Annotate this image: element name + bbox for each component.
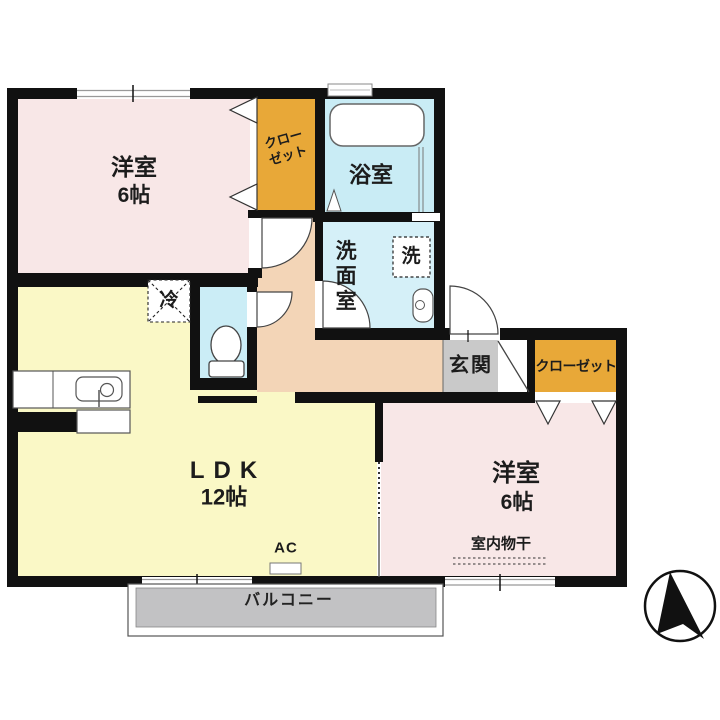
door-front <box>450 286 498 334</box>
bedroom-top-name: 洋室 <box>111 154 157 180</box>
ldk-size: 12帖 <box>201 484 247 509</box>
bath-label: 浴室 <box>349 162 393 187</box>
kitchen-lower-dark <box>13 412 77 432</box>
wall-washroom-bottom <box>315 328 450 340</box>
balcony-label: バルコニー <box>244 592 334 610</box>
hallway-area-2 <box>315 340 443 392</box>
entrance-label: 玄関 <box>449 355 493 378</box>
floor-plan: 洋室 6帖 クロー ゼット 浴室 洗面室 洗 冷 玄関 クローゼット LDK 1… <box>0 0 720 720</box>
wall-partition <box>375 398 383 462</box>
wall-wc-bottom <box>190 378 257 390</box>
ac-unit-box <box>270 563 301 574</box>
ldk-name: LDK <box>190 457 266 485</box>
wall-right <box>616 328 627 587</box>
entrance-diagonal-line <box>498 341 529 392</box>
wall-wc-lower-bar <box>198 396 257 403</box>
closet-right-label: クローゼット <box>536 358 617 374</box>
wall-bath-left <box>315 88 325 222</box>
toilet-bowl <box>211 326 241 364</box>
opening-wc-door <box>247 292 257 327</box>
bedroom-bottom-name: 洋室 <box>492 460 540 488</box>
kitchen-counter <box>13 371 130 433</box>
kitchen-lower-unit <box>77 410 130 433</box>
wall-left <box>7 88 18 587</box>
fridge-label: 冷 <box>159 290 178 312</box>
indoor-drying-label: 室内物干 <box>471 535 531 552</box>
bedroom-top-size: 6帖 <box>118 184 151 208</box>
opening-bedroom-top-door <box>249 218 262 268</box>
wall-hall-bottom <box>295 392 535 403</box>
bedroom-bottom-size: 6帖 <box>501 491 534 515</box>
washer-label: 洗 <box>401 246 420 268</box>
kitchen-faucet <box>101 384 114 397</box>
wall-stub <box>248 268 262 278</box>
wall-top <box>7 88 445 99</box>
opening-washroom-door <box>315 281 323 328</box>
toilet-tank <box>209 361 244 377</box>
wall-wc-left <box>190 277 200 390</box>
wall-bedroom-top-bottom <box>7 273 258 287</box>
compass-icon <box>645 571 715 641</box>
bathtub <box>330 104 424 146</box>
opening-bath-door <box>412 213 440 221</box>
ac-label: AC <box>274 539 298 556</box>
washroom-label: 洗面室 <box>332 240 356 315</box>
